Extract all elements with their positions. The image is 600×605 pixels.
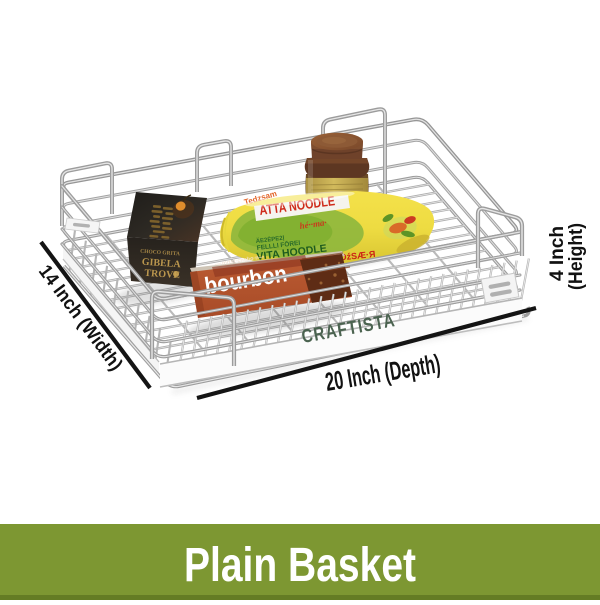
svg-text:Plain Basket: Plain Basket — [184, 539, 416, 592]
svg-text:(Height): (Height) — [566, 223, 587, 290]
svg-text:4 Inch: 4 Inch — [547, 226, 568, 281]
